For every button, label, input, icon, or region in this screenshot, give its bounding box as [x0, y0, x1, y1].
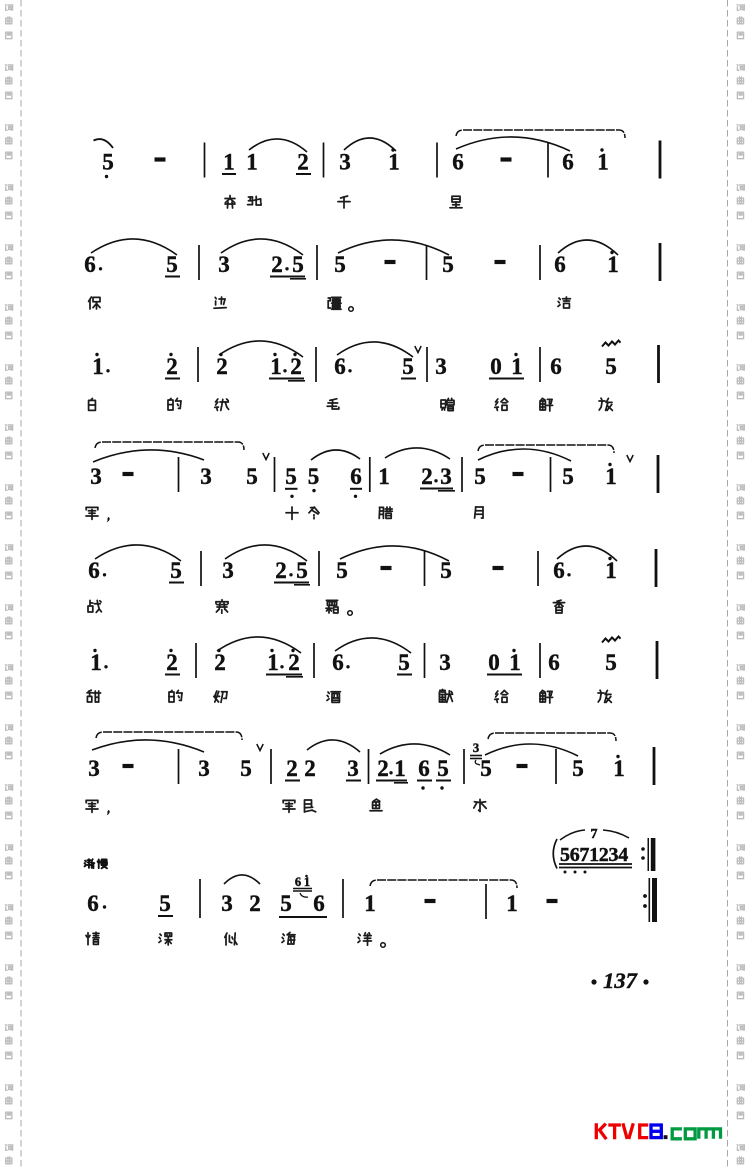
svg-text:1: 1: [613, 756, 625, 781]
svg-text:5: 5: [334, 252, 346, 277]
svg-text:1: 1: [364, 891, 376, 916]
svg-text:3: 3: [218, 252, 230, 277]
svg-text:6: 6: [88, 558, 100, 583]
svg-text:1: 1: [90, 650, 102, 675]
svg-text:5: 5: [159, 891, 171, 916]
svg-text:6: 6: [562, 150, 574, 175]
svg-text:5: 5: [280, 891, 292, 916]
svg-text:1: 1: [597, 150, 609, 175]
svg-text:2: 2: [249, 891, 261, 916]
svg-text:6: 6: [548, 650, 560, 675]
svg-text:3: 3: [221, 891, 233, 916]
svg-text:6: 6: [334, 354, 346, 379]
svg-text:5: 5: [170, 558, 182, 583]
svg-text:2: 2: [421, 464, 433, 489]
svg-text:137: 137: [603, 968, 638, 993]
svg-text:1: 1: [378, 464, 390, 489]
svg-text:1: 1: [605, 558, 617, 583]
svg-text:5: 5: [285, 464, 297, 489]
svg-text:1: 1: [511, 354, 523, 379]
svg-text:5: 5: [440, 558, 452, 583]
svg-text:5: 5: [246, 464, 258, 489]
svg-text:3: 3: [609, 844, 619, 866]
svg-text:5: 5: [560, 844, 570, 866]
svg-text:7: 7: [591, 827, 598, 842]
svg-text:5: 5: [442, 252, 454, 277]
svg-text:1: 1: [589, 844, 599, 866]
svg-text:3: 3: [198, 756, 210, 781]
svg-text:3: 3: [88, 756, 100, 781]
svg-text:5: 5: [474, 464, 486, 489]
svg-text:6: 6: [87, 891, 99, 916]
svg-text:2: 2: [286, 756, 298, 781]
svg-text:5: 5: [398, 650, 410, 675]
svg-text:5: 5: [605, 650, 617, 675]
svg-text:2: 2: [275, 558, 287, 583]
svg-text:3: 3: [90, 464, 102, 489]
svg-text:6: 6: [554, 252, 566, 277]
svg-text:5: 5: [292, 252, 304, 277]
svg-text:5: 5: [572, 756, 584, 781]
svg-text:5: 5: [308, 464, 320, 489]
svg-text:6: 6: [418, 756, 430, 781]
svg-text:5: 5: [296, 558, 308, 583]
svg-text:5: 5: [480, 756, 492, 781]
svg-text:1: 1: [92, 354, 104, 379]
svg-text:7: 7: [579, 844, 589, 866]
svg-text:5: 5: [402, 354, 414, 379]
svg-text:3: 3: [435, 354, 447, 379]
svg-text:5: 5: [240, 756, 252, 781]
svg-text:6: 6: [295, 875, 301, 889]
svg-text:6: 6: [332, 650, 344, 675]
svg-text:6: 6: [350, 464, 362, 489]
svg-text:2: 2: [288, 650, 300, 675]
svg-text:3: 3: [200, 464, 212, 489]
svg-text:3: 3: [439, 650, 451, 675]
svg-text:3: 3: [339, 150, 351, 175]
svg-text:2: 2: [166, 650, 178, 675]
svg-text:5: 5: [336, 558, 348, 583]
svg-text:1: 1: [388, 150, 400, 175]
svg-text:1: 1: [270, 354, 282, 379]
svg-text:5: 5: [437, 756, 449, 781]
svg-text:2: 2: [166, 354, 178, 379]
svg-text:6: 6: [452, 150, 464, 175]
svg-text:6: 6: [553, 558, 565, 583]
svg-text:2: 2: [377, 756, 389, 781]
svg-text:5: 5: [102, 150, 114, 175]
svg-text:2: 2: [297, 150, 309, 175]
svg-text:6: 6: [570, 844, 580, 866]
svg-text:3: 3: [347, 756, 359, 781]
svg-text:2: 2: [214, 650, 226, 675]
svg-text:2: 2: [290, 354, 302, 379]
svg-text:2: 2: [216, 354, 228, 379]
svg-text:2: 2: [271, 252, 283, 277]
svg-text:1: 1: [607, 252, 619, 277]
svg-text:6: 6: [313, 891, 325, 916]
svg-text:5: 5: [562, 464, 574, 489]
svg-text:5: 5: [166, 252, 178, 277]
svg-text:6: 6: [550, 354, 562, 379]
svg-text:5: 5: [605, 354, 617, 379]
svg-text:1: 1: [509, 650, 521, 675]
svg-text:6: 6: [84, 252, 96, 277]
svg-text:1: 1: [605, 464, 617, 489]
svg-text:1: 1: [267, 650, 279, 675]
svg-text:3: 3: [222, 558, 234, 583]
svg-text:1: 1: [223, 150, 235, 175]
svg-text:1: 1: [506, 891, 518, 916]
svg-text:2: 2: [304, 756, 316, 781]
svg-text:0: 0: [490, 354, 502, 379]
svg-text:0: 0: [488, 650, 500, 675]
svg-text:2: 2: [599, 844, 609, 866]
svg-text:1: 1: [246, 150, 258, 175]
svg-text:1: 1: [394, 756, 406, 781]
svg-text:4: 4: [618, 844, 628, 866]
svg-text:3: 3: [473, 740, 480, 755]
svg-text:3: 3: [440, 464, 452, 489]
